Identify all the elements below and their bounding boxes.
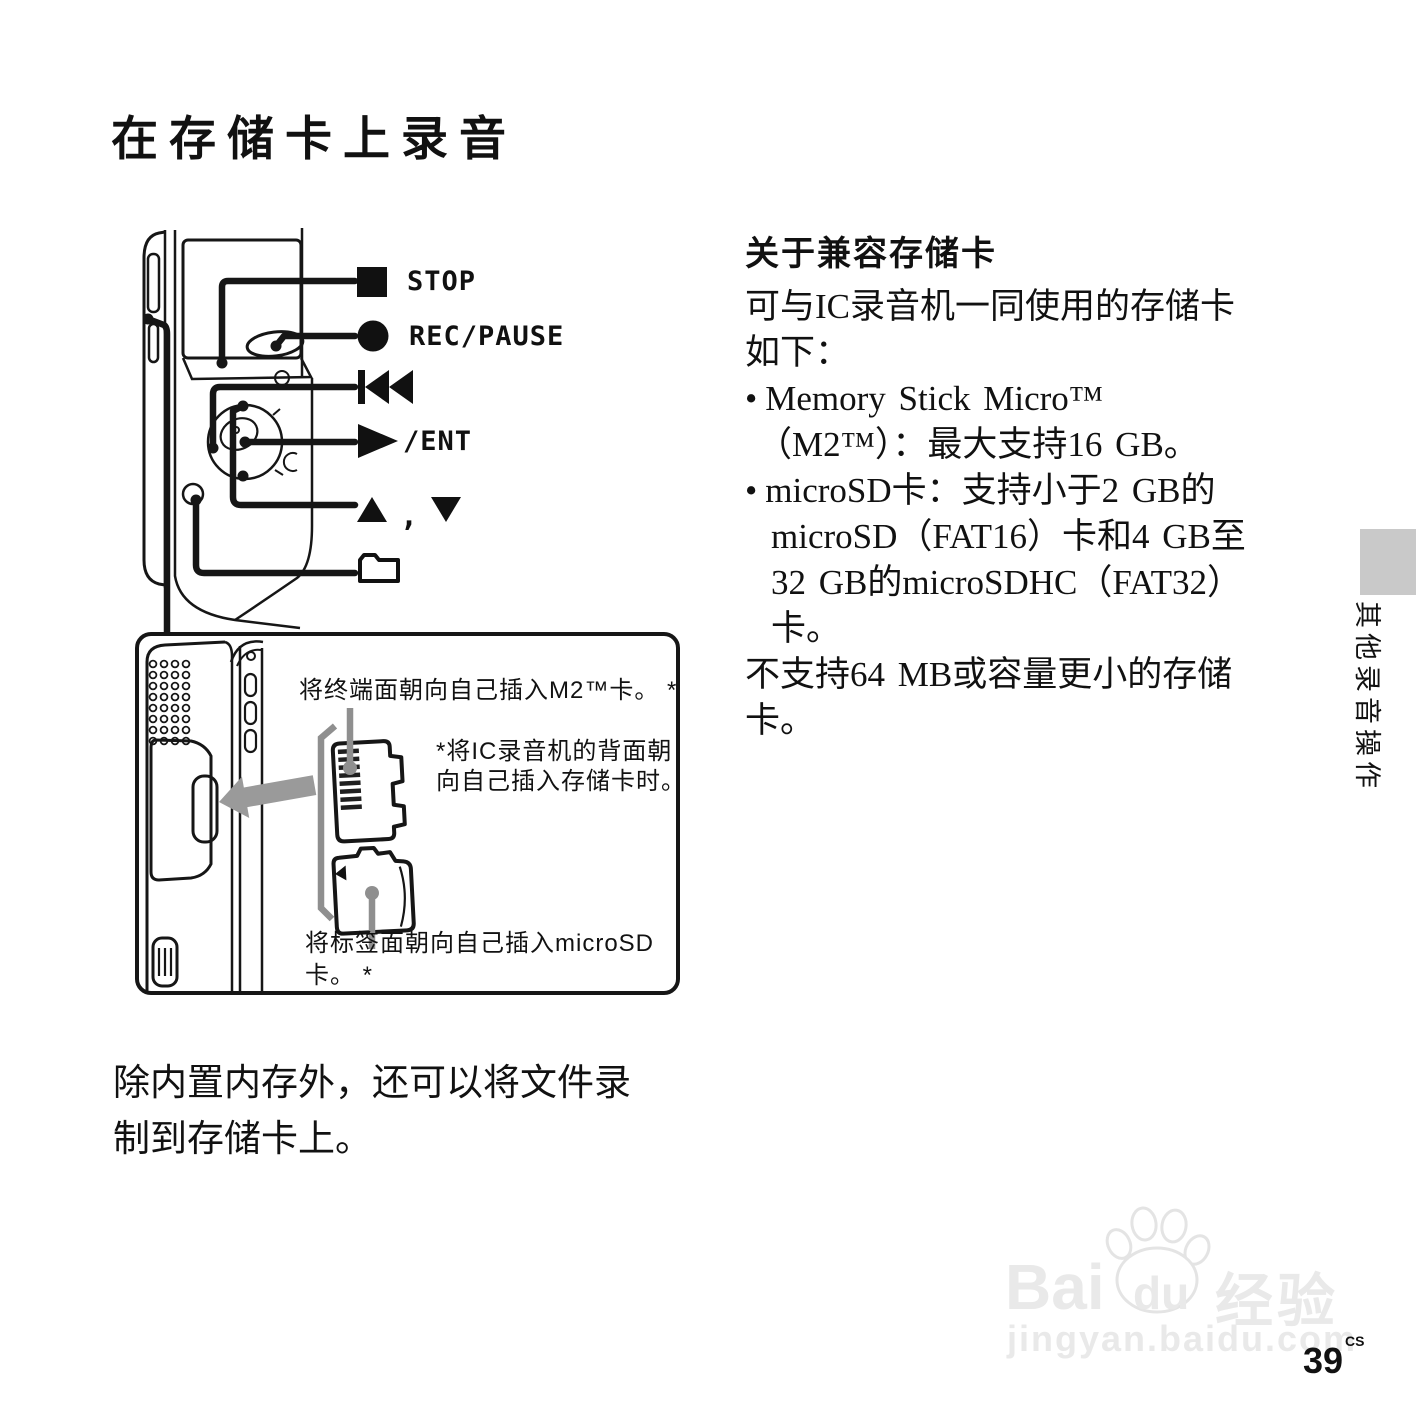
- m2-insert-instruction: 将终端面朝向自己插入M2™卡。 *: [299, 670, 677, 705]
- rec-pause-label: REC/PAUSE: [409, 321, 564, 352]
- bottom-note: 除内置内存外，还可以将文件录 制到存储卡上。: [113, 1056, 631, 1168]
- compat-bullet-microsd-cont: 32 GB的microSDHC（FAT32）: [745, 560, 1345, 606]
- bullet-icon: •: [745, 379, 757, 418]
- page-title: 在存储卡上录音: [111, 100, 517, 169]
- previous-track-icon: [357, 370, 413, 404]
- down-triangle-icon: [431, 497, 461, 522]
- compat-bullet-m2: •Memory Stick Micro™: [745, 376, 1345, 422]
- callout-rec-pause: REC/PAUSE: [357, 320, 564, 352]
- folder-icon: [357, 551, 401, 585]
- hold-switch: [148, 254, 159, 312]
- callout-folder: [357, 551, 401, 585]
- compat-outro-line: 不支持64 MB或容量更小的存储: [745, 652, 1345, 698]
- stop-square-icon: [357, 267, 387, 297]
- compat-bullet-microsd: •microSD卡：支持小于2 GB的: [745, 468, 1345, 514]
- page-number-suffix: CS: [1345, 1333, 1364, 1349]
- card-insertion-diagram: 将终端面朝向自己插入M2™卡。 * *将IC录音机的背面朝 向自己插入存储卡时。…: [135, 632, 680, 995]
- compatible-cards-section: 关于兼容存储卡 可与IC录音机一同使用的存储卡 如下： •Memory Stic…: [745, 226, 1345, 744]
- callout-lines: [148, 281, 355, 632]
- callout-up-down: ,: [357, 492, 461, 527]
- chapter-tab: [1360, 529, 1416, 595]
- recorder-front-diagram: [135, 228, 545, 632]
- up-triangle-icon: [357, 497, 387, 522]
- compat-outro-line: 卡。: [745, 698, 1345, 744]
- card-slot-cover: [151, 740, 211, 880]
- record-circle-icon: [357, 320, 389, 352]
- manual-page: 在存储卡上录音: [0, 0, 1416, 1416]
- page-number: 39CS: [1303, 1340, 1363, 1382]
- watermark-brand-prefix: Bai: [1005, 1250, 1105, 1324]
- callout-previous: [357, 370, 413, 404]
- play-icon: [357, 424, 399, 458]
- watermark-brand-mid: du: [1133, 1266, 1189, 1320]
- play-ent-label: /ENT: [403, 426, 472, 457]
- bullet-icon: •: [745, 471, 757, 510]
- compat-bullet-microsd-cont: 卡。: [745, 606, 1345, 652]
- compat-heading: 关于兼容存储卡: [745, 226, 1345, 275]
- microsd-insert-instruction: 将标签面朝向自己插入microSD 卡。 *: [305, 928, 654, 992]
- m2-card: [332, 740, 405, 841]
- callout-stop: STOP: [357, 266, 476, 297]
- compat-intro-line: 可与IC录音机一同使用的存储卡: [745, 284, 1345, 330]
- compat-bullet-microsd-cont: microSD（FAT16）卡和4 GB至: [745, 514, 1345, 560]
- card-slot-opening: [193, 776, 217, 842]
- chapter-tab-label: 其他录音操作: [1350, 601, 1389, 793]
- back-insert-note: *将IC录音机的背面朝 向自己插入存储卡时。: [436, 737, 686, 797]
- compat-intro-line: 如下：: [745, 330, 1345, 376]
- callout-play-ent: /ENT: [357, 424, 472, 458]
- speaker-grille: [150, 661, 190, 745]
- compat-bullet-m2-cont: （M2™）：最大支持16 GB。: [745, 422, 1345, 468]
- stop-label: STOP: [407, 266, 476, 297]
- comma-separator: ,: [400, 499, 418, 534]
